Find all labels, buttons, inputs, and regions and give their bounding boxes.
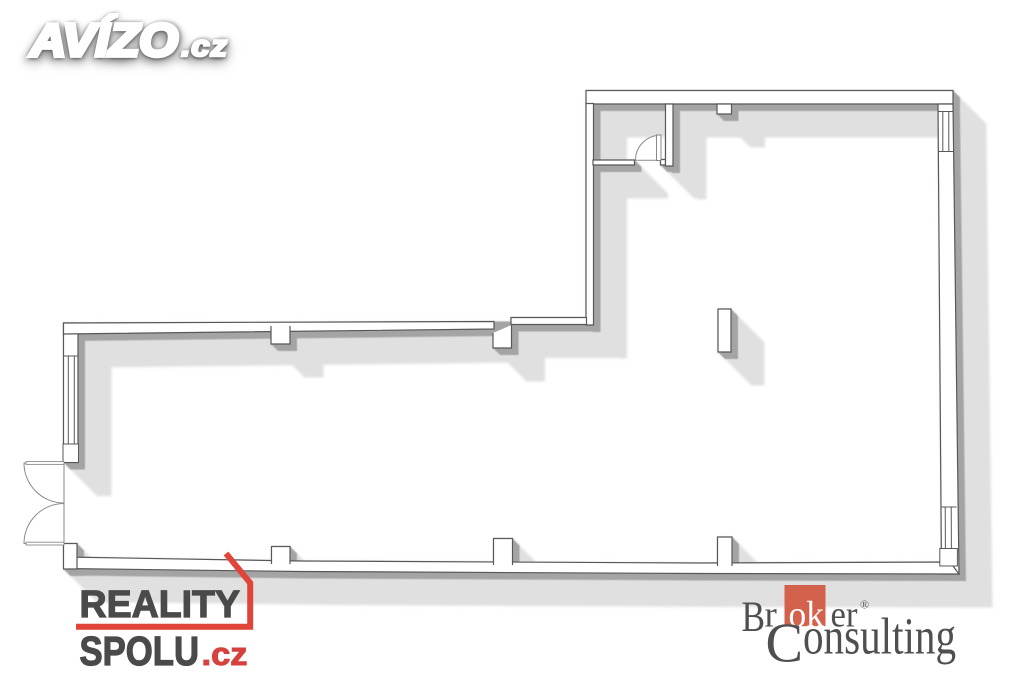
svg-text:onsulting: onsulting (803, 609, 956, 666)
svg-text:.cz: .cz (202, 636, 248, 672)
svg-text:REALITY: REALITY (80, 584, 241, 626)
svg-text:SPOLU: SPOLU (80, 628, 200, 674)
svg-text:B: B (742, 594, 766, 641)
svg-text:C: C (766, 613, 804, 675)
